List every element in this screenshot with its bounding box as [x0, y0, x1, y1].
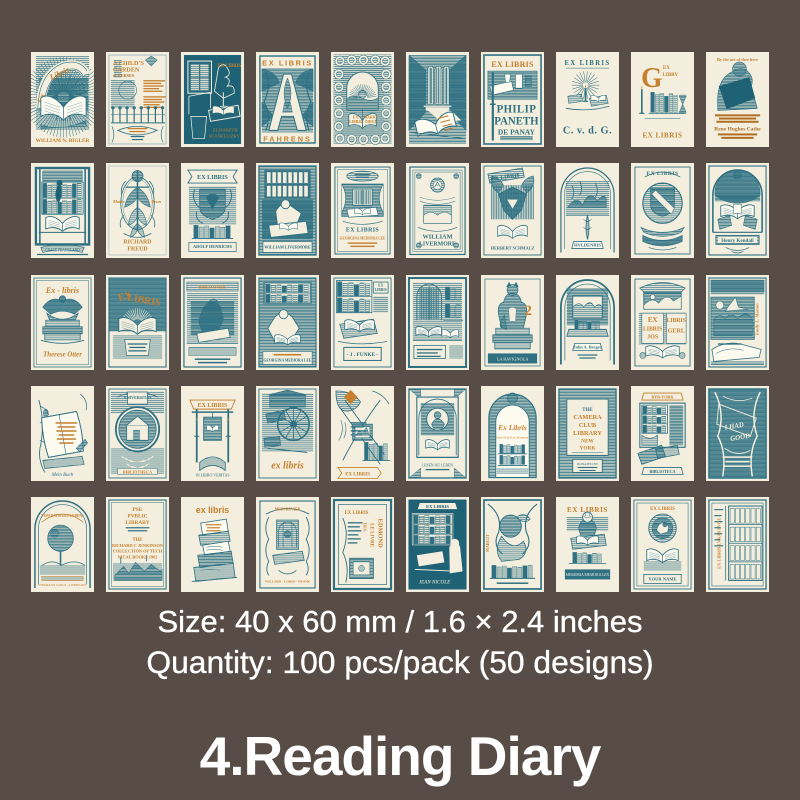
svg-text:LIBRARY: LIBRARY	[573, 430, 602, 437]
svg-text:RICHARD C JENKINSON: RICHARD C JENKINSON	[112, 543, 164, 548]
svg-text:CLUB: CLUB	[579, 422, 597, 429]
svg-text:FAHRENS: FAHRENS	[263, 134, 312, 143]
svg-text:C. v. d. G.: C. v. d. G.	[563, 125, 612, 136]
svg-text:DE PANAY: DE PANAY	[498, 127, 536, 136]
svg-text:Therese Otter: Therese Otter	[43, 350, 82, 358]
svg-text:WILLIAM: WILLIAM	[422, 234, 452, 241]
svg-text:FREUD: FREUD	[127, 247, 148, 253]
svg-text:GEORGINA MEDIORA LEE: GEORGINA MEDIORA LEE	[340, 237, 386, 241]
svg-text:EX LIBRIS: EX LIBRIS	[345, 472, 370, 477]
svg-text:Rene Hughes Cathe: Rene Hughes Cathe	[714, 126, 761, 132]
svg-text:PHILIP: PHILIP	[497, 103, 537, 115]
svg-text:MARGIT: MARGIT	[485, 534, 490, 552]
svg-text:Ex Libris: Ex Libris	[497, 423, 527, 432]
svg-text:LIBRIS: LIBRIS	[375, 288, 387, 292]
svg-text:EX: EX	[648, 316, 658, 324]
svg-text:A CHILD’S: A CHILD’S	[113, 61, 145, 67]
svg-text:LIBRIS: LIBRIS	[667, 318, 686, 324]
svg-text:LE LIVRE: LE LIVRE	[368, 523, 373, 548]
svg-text:GRACE FRANKLAND: GRACE FRANKLAND	[45, 249, 80, 253]
svg-text:DONATED BY: DONATED BY	[577, 462, 599, 466]
svg-text:LIBRIS: LIBRIS	[349, 120, 362, 124]
svg-text:THE: THE	[582, 408, 593, 413]
svg-text:ELISABETH: ELISABETH	[213, 127, 238, 132]
svg-text:EX: EX	[353, 115, 358, 119]
svg-text:EX LIBRIS: EX LIBRIS	[426, 504, 449, 509]
svg-text:LA RAVIGNOLA: LA RAVIGNOLA	[497, 356, 530, 361]
svg-text:EX: EX	[378, 283, 383, 287]
svg-text:2: 2	[525, 303, 532, 319]
svg-text:MEIN REVIER: MEIN REVIER	[275, 508, 301, 512]
svg-text:COLLECTION OF TECH: COLLECTION OF TECH	[113, 549, 163, 554]
svg-text:SCANELLIZKY: SCANELLIZKY	[209, 133, 241, 138]
svg-text:PSE: PSE	[133, 507, 143, 513]
svg-text:WILLIAM N. BIGLER: WILLIAM N. BIGLER	[36, 138, 90, 144]
svg-text:YOUR NAME: YOUR NAME	[648, 576, 676, 581]
svg-text:WILLIAM LIVERMORE: WILLIAM LIVERMORE	[264, 245, 311, 250]
svg-text:Maria: Maria	[112, 199, 125, 204]
svg-text:BIBLIOTHEK: BIBLIOTHEK	[199, 284, 227, 289]
svg-text:YORK: YORK	[580, 445, 597, 451]
svg-text:MEMORIA MEMORA LEX: MEMORIA MEMORA LEX	[566, 573, 610, 577]
svg-text:LIBRV: LIBRV	[662, 72, 678, 78]
svg-text:HERMANN SANGS - LIEBINGEN: HERMANN SANGS - LIEBINGEN	[39, 583, 86, 587]
svg-text:HVLDENRIS: HVLDENRIS	[574, 243, 601, 248]
svg-text:BIBLIOTHECA: BIBLIOTHECA	[123, 469, 152, 474]
svg-text:LIBRARY: LIBRARY	[125, 520, 149, 526]
svg-text:EX LIBRIS: EX LIBRIS	[217, 64, 241, 69]
svg-text:PANETH: PANETH	[494, 115, 539, 127]
svg-text:DES: DES	[362, 523, 367, 532]
svg-text:LESEN IST LEBEN: LESEN IST LEBEN	[422, 463, 453, 467]
svg-text:PVBLIC: PVBLIC	[127, 514, 147, 520]
svg-text:HERBERT SCHMALZ: HERBERT SCHMALZ	[491, 246, 535, 251]
svg-text:BIBLIOTECA: BIBLIOTECA	[649, 469, 675, 474]
svg-text:JEAN NICOLE: JEAN NICOLE	[419, 579, 451, 585]
svg-text:- J . FUNKE -: - J . FUNKE -	[347, 351, 379, 357]
svg-text:IN LIBRO VERITAS: IN LIBRO VERITAS	[195, 472, 229, 477]
svg-text:ex libris: ex libris	[196, 505, 229, 515]
svg-text:GERL: GERL	[668, 328, 685, 334]
svg-text:ADOLF HENRICHS: ADOLF HENRICHS	[193, 244, 233, 249]
svg-text:EX LIBRIS: EX LIBRIS	[198, 403, 228, 409]
svg-text:EX LIBRIS: EX LIBRIS	[345, 511, 369, 516]
svg-text:EX LIBRIS: EX LIBRIS	[642, 131, 682, 139]
svg-text:WILLARD - LORDS - FRANK: WILLARD - LORDS - FRANK	[265, 579, 311, 583]
svg-text:EX LIBRIS: EX LIBRIS	[646, 171, 678, 177]
svg-text:NEW: NEW	[581, 438, 594, 444]
svg-text:Henry Kendall: Henry Kendall	[721, 238, 754, 244]
svg-text:JOS: JOS	[647, 334, 659, 340]
svg-text:LIBRIS: LIBRIS	[643, 326, 662, 332]
svg-text:John A. Berger: John A. Berger	[574, 344, 602, 349]
svg-text:Ex - libris: Ex - libris	[45, 286, 79, 295]
svg-text:EX LIBRIS: EX LIBRIS	[346, 228, 379, 234]
svg-text:VNIVERSITAS: VNIVERSITAS	[124, 395, 152, 400]
svg-text:Mein Buch: Mein Buch	[51, 473, 74, 478]
svg-text:EX LIBRIS: EX LIBRIS	[564, 60, 610, 67]
svg-text:VOM BAVM DES LEBENS: VOM BAVM DES LEBENS	[41, 514, 83, 518]
svg-text:CAMERA: CAMERA	[573, 414, 602, 421]
svg-text:ex libris: ex libris	[271, 460, 304, 471]
svg-text:EDMOND: EDMOND	[376, 519, 383, 549]
svg-text:NICAL BOOKS 1902: NICAL BOOKS 1902	[118, 554, 158, 559]
svg-text:EX LIBRIS: EX LIBRIS	[262, 58, 313, 67]
svg-text:G: G	[641, 63, 662, 94]
svg-text:Brun: Brun	[150, 199, 161, 204]
svg-text:Rudolf & Karl Hammer: Rudolf & Karl Hammer	[496, 435, 529, 439]
svg-text:LIVERMORE: LIVERMORE	[419, 242, 456, 248]
svg-text:CHIGI: CHIGI	[365, 120, 377, 124]
svg-text:of VERSES: of VERSES	[113, 73, 135, 78]
svg-text:EX LIBRIS LVKAS LVGE: EX LIBRIS LVKAS LVGE	[716, 518, 721, 569]
svg-text:RICHARD: RICHARD	[123, 240, 152, 246]
svg-text:EX LIBRIS: EX LIBRIS	[650, 507, 675, 512]
svg-text:Emily L. Morton: Emily L. Morton	[755, 302, 760, 335]
svg-text:EX LIBRIS: EX LIBRIS	[197, 175, 228, 181]
svg-text:EX: EX	[663, 65, 670, 71]
svg-text:BYB-YORK: BYB-YORK	[651, 394, 674, 399]
svg-text:EX LIBRIS: EX LIBRIS	[491, 60, 534, 69]
svg-text:By the art of thee here: By the art of thee here	[717, 57, 758, 62]
svg-text:MARIO: MARIO	[364, 115, 377, 119]
svg-text:GEORGINA MEDIORA LEE: GEORGINA MEDIORA LEE	[263, 358, 312, 362]
